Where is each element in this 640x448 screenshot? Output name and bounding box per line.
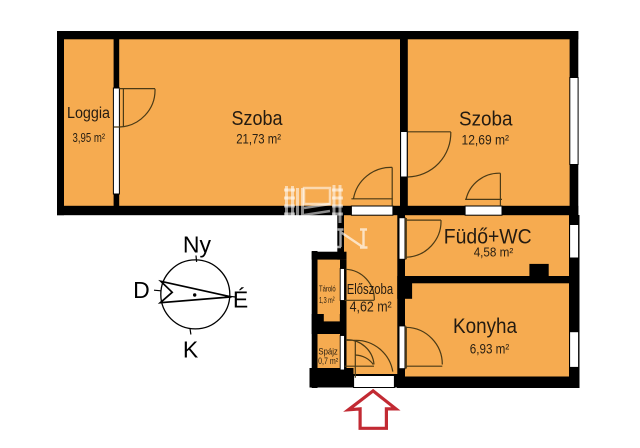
svg-text:Szoba: Szoba bbox=[232, 108, 284, 130]
svg-text:D: D bbox=[133, 277, 150, 303]
svg-text:0,7 m²: 0,7 m² bbox=[318, 356, 338, 366]
svg-text:Ny: Ny bbox=[183, 232, 212, 258]
svg-text:Előszoba: Előszoba bbox=[347, 282, 394, 298]
svg-text:21,73 m²: 21,73 m² bbox=[236, 131, 281, 147]
svg-text:6,93 m²: 6,93 m² bbox=[470, 342, 510, 357]
svg-text:Tároló: Tároló bbox=[319, 284, 336, 294]
svg-text:4,58 m²: 4,58 m² bbox=[474, 245, 514, 260]
svg-text:É: É bbox=[233, 287, 248, 313]
svg-text:12,69 m²: 12,69 m² bbox=[462, 132, 510, 148]
svg-text:Loggia: Loggia bbox=[67, 105, 110, 122]
svg-text:Szoba: Szoba bbox=[459, 108, 513, 130]
svg-text:K: K bbox=[183, 337, 199, 363]
svg-text:1,3 m²: 1,3 m² bbox=[319, 295, 335, 305]
svg-text:3,95 m²: 3,95 m² bbox=[73, 130, 106, 145]
svg-text:Konyha: Konyha bbox=[453, 314, 517, 338]
svg-text:4,62 m²: 4,62 m² bbox=[350, 300, 392, 316]
